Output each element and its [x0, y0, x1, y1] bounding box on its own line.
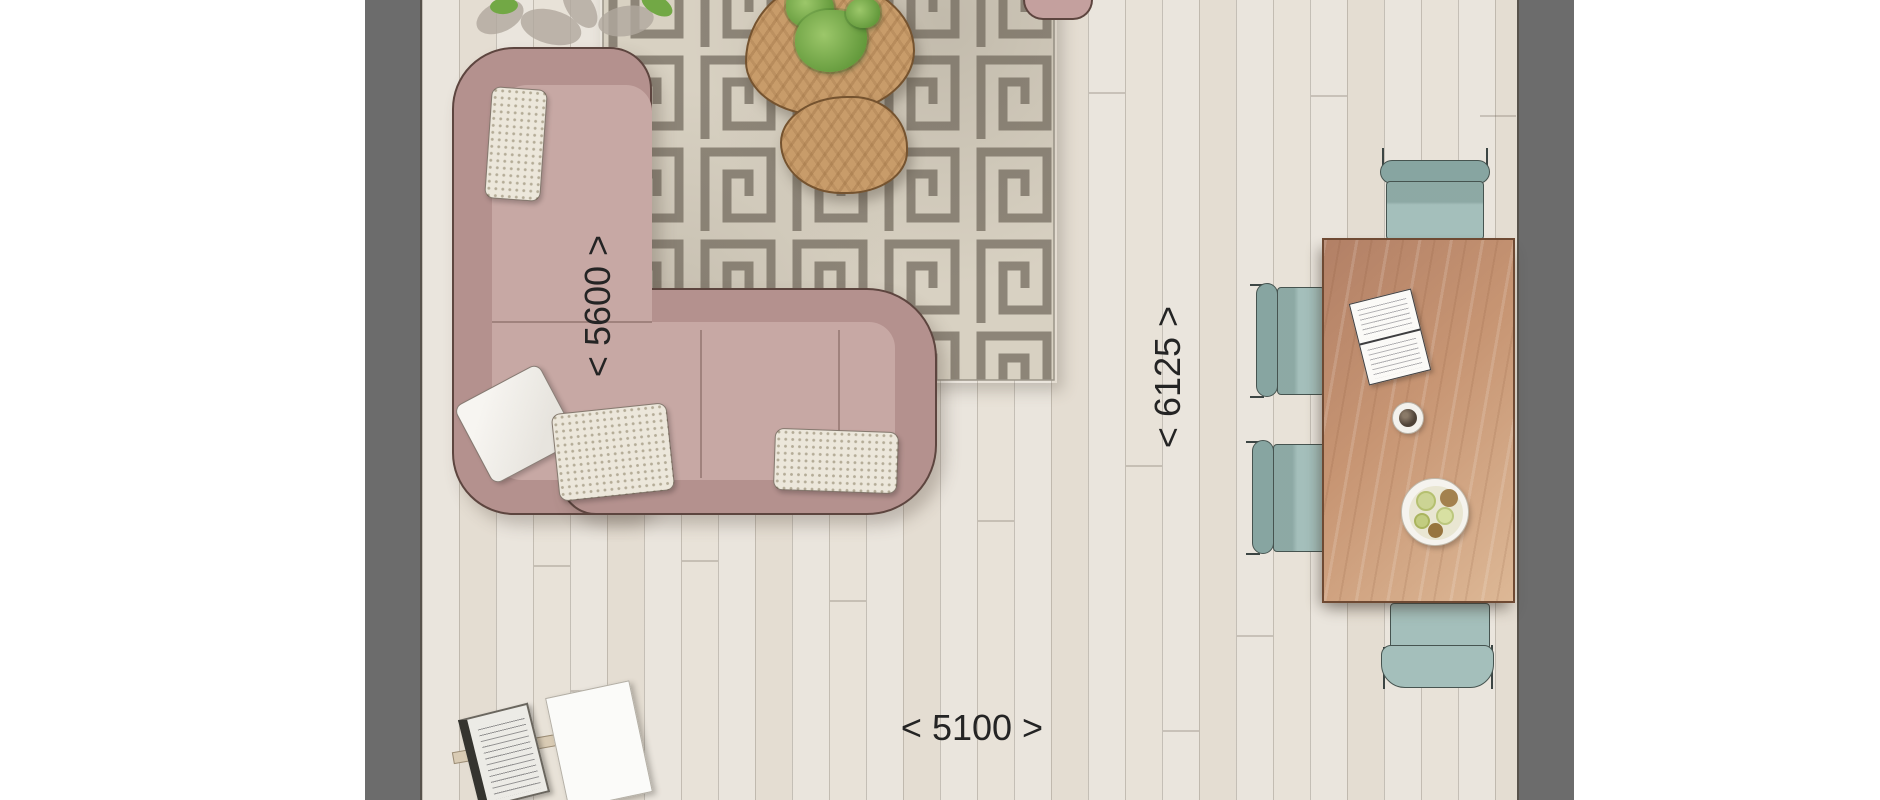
chair-leg: [1250, 396, 1264, 398]
plank-joint: [1237, 635, 1273, 637]
wall-right: [1517, 0, 1574, 800]
sofa-seam: [492, 321, 652, 323]
dining-chair-bottom-seat: [1390, 603, 1490, 650]
plank-joint: [978, 520, 1014, 522]
plank-joint: [1163, 730, 1199, 732]
plank-joint: [534, 565, 570, 567]
plank-joint: [1126, 465, 1162, 467]
plank-joint: [682, 560, 718, 562]
sofa-seam: [700, 330, 702, 478]
plank-joint: [1480, 115, 1516, 117]
dining-chair-left-b-seat: [1273, 444, 1327, 552]
dining-chair-top-seat: [1386, 181, 1484, 240]
plank-joint: [830, 600, 866, 602]
fruit-round: [1428, 523, 1443, 538]
plank-joint: [1311, 95, 1347, 97]
dimension-label-6125: < 6125 >: [1147, 306, 1189, 448]
coffee-table-small: [780, 96, 908, 194]
plank-joint: [1089, 92, 1125, 94]
sofa-pillow-sequin: [484, 86, 548, 202]
dining-chair-left-a-back: [1256, 283, 1278, 397]
magazine-text: [477, 714, 542, 799]
cutoff-armchair: [1023, 0, 1093, 20]
fruit-bowl: [1401, 478, 1469, 546]
fruit-slice: [1416, 491, 1436, 511]
sofa-pillow-pattern: [551, 402, 676, 502]
fruit-slice: [1436, 507, 1454, 525]
sofa-pillow-pattern: [773, 428, 899, 494]
fruit-round: [1440, 489, 1458, 507]
wall-left: [365, 0, 422, 800]
dimension-label-5600: < 5600 >: [577, 235, 619, 377]
plant-foliage: [846, 0, 880, 28]
coffee-surface: [1399, 409, 1417, 427]
dining-chair-left-a-seat: [1277, 287, 1325, 395]
dimension-label-5100: < 5100 >: [901, 707, 1043, 749]
floor-plan-canvas: < 5600 > < 6125 > < 5100 >: [0, 0, 1880, 800]
chair-leg: [1246, 553, 1260, 555]
notebook-page: [1367, 336, 1423, 379]
dining-chair-left-b-back: [1252, 440, 1274, 554]
dining-chair-bottom-back: [1381, 645, 1494, 688]
coffee-cup: [1392, 402, 1424, 434]
